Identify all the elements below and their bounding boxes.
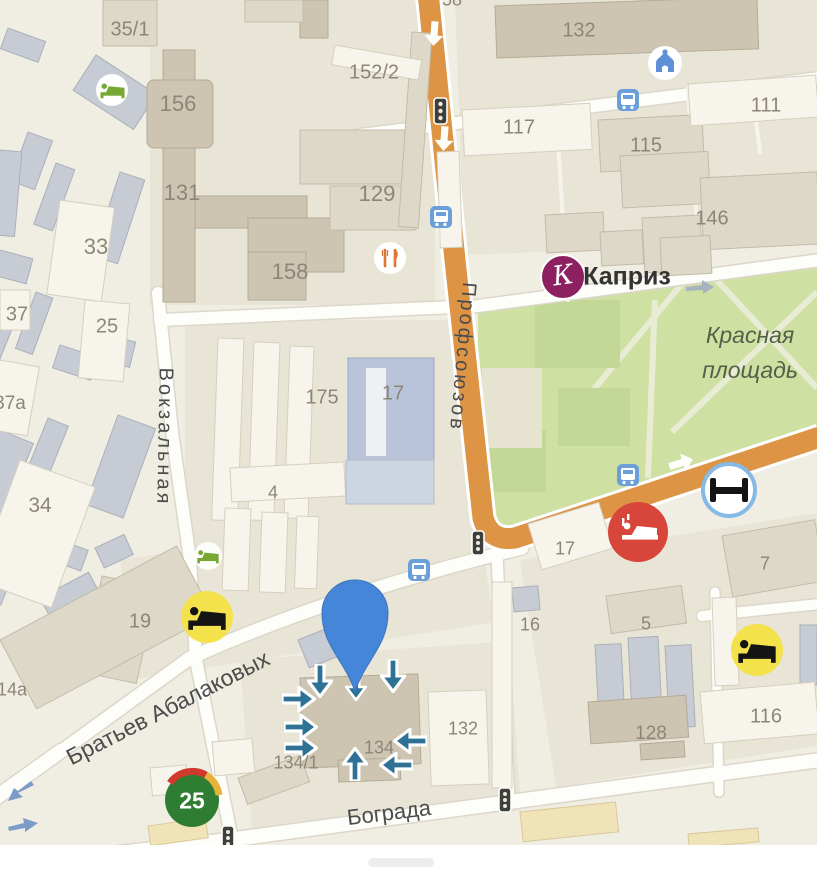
park-label: Красная площадь bbox=[688, 318, 812, 387]
map-viewport[interactable]: 35/1 156 131 33 25 37 37а 34 152/2 129 1… bbox=[0, 0, 817, 845]
sheet-drag-handle[interactable] bbox=[368, 858, 434, 867]
restaurant-icon bbox=[374, 242, 406, 274]
bus-stop-icon bbox=[617, 89, 639, 111]
hotel-bed-red-icon bbox=[608, 502, 668, 562]
home-landmark-icon bbox=[648, 46, 682, 80]
screen: 35/1 156 131 33 25 37 37а 34 152/2 129 1… bbox=[0, 0, 817, 890]
hotel-bed-ring-icon bbox=[703, 464, 755, 516]
hotel-bed-yellow-icon bbox=[731, 624, 783, 676]
store-25-badge-label[interactable]: 25 bbox=[179, 788, 205, 815]
bus-stop-icon bbox=[430, 206, 452, 228]
bus-stop-icon bbox=[617, 464, 639, 486]
map-canvas[interactable] bbox=[0, 0, 817, 845]
hotel-bed-green-icon bbox=[194, 542, 222, 570]
hotel-bed-yellow-icon bbox=[181, 591, 233, 643]
bus-stop-icon bbox=[408, 559, 430, 581]
hotel-bed-green-icon bbox=[96, 74, 128, 106]
kapriz-logo-letter[interactable]: К bbox=[550, 259, 575, 293]
